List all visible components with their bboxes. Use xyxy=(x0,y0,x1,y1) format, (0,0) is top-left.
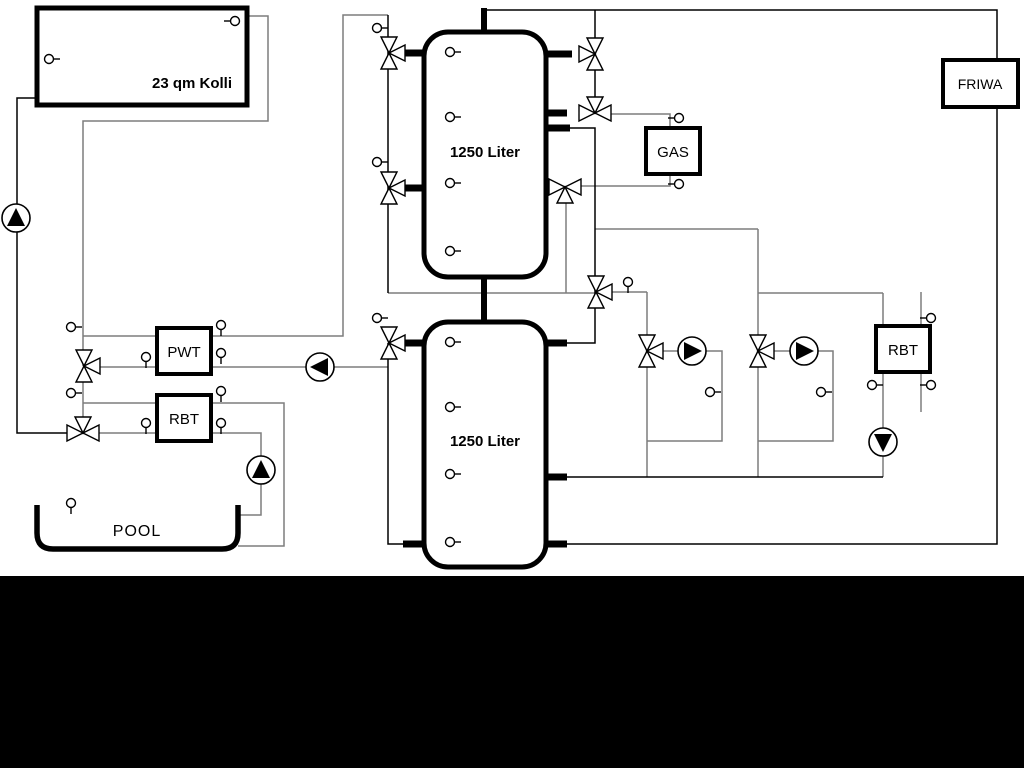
valve-mid-mixer xyxy=(588,276,612,308)
pump-solar-icon xyxy=(2,204,30,232)
sensor-icon xyxy=(624,278,633,294)
pipe-tank-bottom-left xyxy=(388,343,403,544)
pipe-collector-return xyxy=(17,98,67,433)
valve-tank1-left-top xyxy=(381,37,405,69)
sensor-icon xyxy=(67,389,83,398)
sensor-icon xyxy=(373,314,389,323)
valve-tank1-right-top xyxy=(579,38,603,70)
pump-pwt-icon xyxy=(306,353,334,381)
valve-gas-supply xyxy=(579,97,611,121)
friwa-label: FRIWA xyxy=(958,76,1003,92)
valve-heating-circuit-2 xyxy=(750,335,774,367)
pump-heating-1-icon xyxy=(678,337,706,365)
valve-pool-mixer xyxy=(67,417,99,441)
valve-pwt-mixer xyxy=(76,350,100,382)
sensor-icon xyxy=(67,323,83,332)
pipe-top-header-friwa xyxy=(484,10,997,544)
solar-collector-label: 23 qm Kolli xyxy=(152,75,232,92)
pipe-rbt-bottom-pool xyxy=(99,433,261,515)
sensor-icon xyxy=(706,388,722,397)
sensor-icon xyxy=(373,158,389,167)
sensor-icon xyxy=(67,499,76,515)
pump-circulation-icon xyxy=(869,428,897,456)
pipe-right-valve-column-lower xyxy=(545,128,595,343)
valve-gas-return xyxy=(549,179,581,203)
pump-pool-icon xyxy=(247,456,275,484)
sensor-icon xyxy=(920,314,936,323)
buffer-tank-lower-label: 1250 Liter xyxy=(450,433,520,450)
bottom-black-bar xyxy=(0,576,1024,768)
valve-tank2-left xyxy=(381,327,405,359)
valve-heating-circuit-1 xyxy=(639,335,663,367)
sensor-icon xyxy=(217,321,226,337)
sensor-icon xyxy=(217,419,226,435)
sensor-icon xyxy=(868,381,884,390)
pump-heating-2-icon xyxy=(790,337,818,365)
rbt-left-label: RBT xyxy=(169,411,199,428)
sensor-icon xyxy=(920,381,936,390)
gas-label: GAS xyxy=(657,144,689,161)
sensor-icon xyxy=(142,419,151,435)
rbt-right-label: RBT xyxy=(888,342,918,359)
sensor-icon xyxy=(817,388,833,397)
pool-label: POOL xyxy=(113,523,161,540)
pipe-gas-supply xyxy=(611,114,670,128)
sensor-icon xyxy=(373,24,389,33)
sensor-icon xyxy=(217,387,226,403)
diagram-canvas: 23 qm Kolli 1250 Liter 1250 Liter PWT RB… xyxy=(0,0,1024,768)
sensor-icon xyxy=(142,353,151,369)
buffer-tank-upper-label: 1250 Liter xyxy=(450,144,520,161)
sensor-icon xyxy=(217,349,226,365)
hydraulic-schematic: 23 qm Kolli 1250 Liter 1250 Liter PWT RB… xyxy=(0,0,1024,768)
valve-tank1-left-bottom xyxy=(381,172,405,204)
pwt-label: PWT xyxy=(167,344,200,361)
